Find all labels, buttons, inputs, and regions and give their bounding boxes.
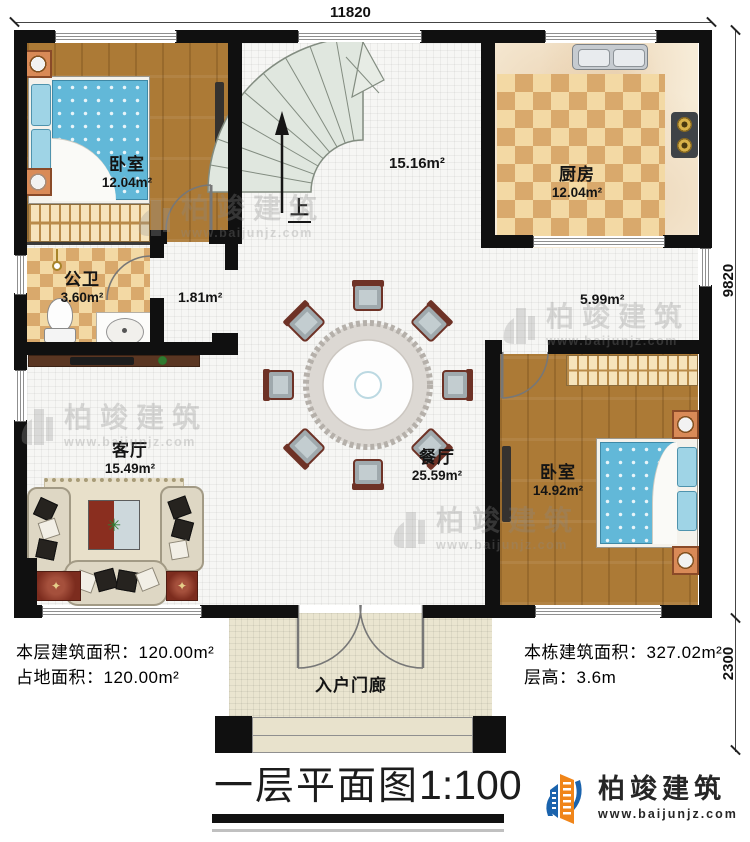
- window: [55, 31, 177, 42]
- wall-segment: [14, 30, 27, 255]
- title-underline-thick: [212, 814, 504, 823]
- wall-segment: [660, 605, 712, 618]
- wall-segment: [150, 230, 167, 244]
- window: [15, 370, 26, 422]
- stairs-up-label: 上: [288, 193, 311, 223]
- hallway-area-label: 1.81m²: [178, 289, 222, 305]
- brand-name: 柏竣建筑: [598, 776, 738, 803]
- wall-segment: [150, 298, 164, 346]
- window: [15, 255, 26, 295]
- info-label: 占地面积：: [16, 668, 104, 687]
- title-underline-thin: [212, 829, 504, 832]
- info-label: 层高：: [524, 668, 577, 687]
- wall-segment: [481, 30, 495, 248]
- dim-top-label: 11820: [330, 4, 371, 21]
- info-value: 327.02m²: [647, 643, 723, 662]
- wall-thin-divider: [27, 242, 150, 245]
- wall-segment: [548, 340, 712, 354]
- bedroom1-door-arc: [166, 185, 211, 230]
- info-label: 本栋建筑面积：: [524, 643, 647, 662]
- info-label: 本层建筑面积：: [16, 643, 139, 662]
- porch-pillar: [473, 716, 506, 753]
- info-value: 3.6m: [577, 668, 617, 687]
- plan-title-text: 一层平面图: [214, 755, 419, 811]
- info-value: 120.00m²: [104, 668, 180, 687]
- room-label-bedroom1: 卧室12.04m²: [77, 155, 177, 190]
- wall-segment: [663, 235, 712, 248]
- dim-right-lower-label: 2300: [720, 647, 737, 680]
- porch-door-arc: [298, 605, 361, 668]
- wall-segment: [200, 605, 298, 618]
- bedroom2-door-arc: [502, 352, 548, 398]
- wall-segment: [481, 235, 533, 248]
- kitchen-sliding-door: [533, 236, 665, 247]
- room-label-porch: 入户门廊: [301, 676, 401, 696]
- stairwell-area-label: 15.16m²: [389, 155, 445, 172]
- wall-segment: [209, 230, 228, 244]
- room-label-living: 客厅15.49m²: [80, 441, 180, 476]
- plan-title-scale: 1:100: [419, 762, 522, 809]
- wall-segment: [699, 285, 712, 618]
- window: [42, 606, 202, 617]
- porch-pillar: [215, 716, 252, 753]
- wall-segment: [225, 244, 238, 270]
- wall-segment: [175, 30, 298, 43]
- wall-segment: [14, 293, 27, 370]
- info-total-area: 本栋建筑面积：327.02m²: [524, 638, 722, 663]
- room-label-bathroom: 公卫3.60m²: [32, 270, 132, 305]
- room-label-kitchen: 厨房12.04m²: [527, 165, 627, 200]
- wall-segment: [423, 605, 535, 618]
- wall-segment: [150, 244, 164, 258]
- info-floor-height: 层高：3.6m: [524, 663, 616, 688]
- info-floor-area: 本层建筑面积：120.00m²: [16, 638, 214, 663]
- wall-segment: [228, 43, 242, 244]
- dim-line-top: [14, 22, 712, 23]
- brand-logo: 柏竣建筑 www.baijunjz.com: [540, 766, 738, 830]
- room-label-dining: 餐厅25.59m²: [387, 448, 487, 483]
- dim-line-right: [735, 30, 736, 752]
- wall-segment: [212, 333, 238, 355]
- window: [298, 31, 422, 42]
- plan-title: 一层平面图1:100: [214, 755, 522, 811]
- info-value: 120.00m²: [139, 643, 215, 662]
- wall-segment: [14, 558, 37, 607]
- window: [545, 31, 657, 42]
- corridor-area-label: 5.99m²: [580, 291, 624, 307]
- porch-door-arc: [360, 605, 423, 668]
- wall-segment: [14, 605, 42, 618]
- dim-right-upper-label: 9820: [720, 264, 737, 297]
- wall-segment: [699, 30, 712, 248]
- room-label-bedroom2: 卧室14.92m²: [508, 463, 608, 498]
- window: [535, 606, 662, 617]
- brand-logo-icon: [540, 766, 588, 830]
- floor-plan-page: ✳ ✦ ✦: [0, 0, 750, 842]
- plan-graphics: [0, 0, 750, 842]
- window: [700, 248, 711, 287]
- info-land-area: 占地面积：120.00m²: [16, 663, 179, 688]
- wall-segment: [14, 342, 214, 355]
- brand-url: www.baijunjz.com: [598, 808, 738, 821]
- wall-segment: [485, 340, 500, 605]
